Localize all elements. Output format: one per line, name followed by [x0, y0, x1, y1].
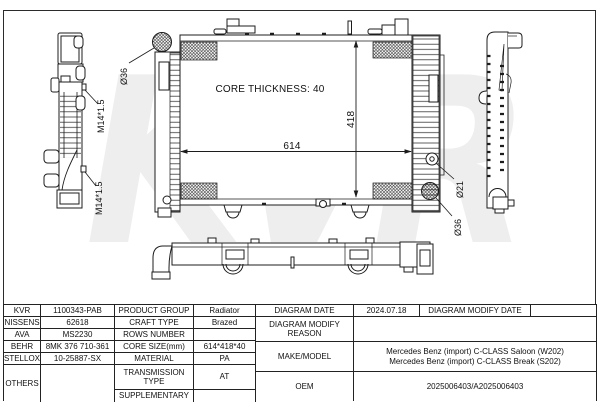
brand-name: NISSENS — [4, 317, 41, 329]
spec-label: ROWS NUMBER — [115, 329, 194, 341]
spec-label: MATERIAL — [115, 353, 194, 365]
spec-value: Brazed — [194, 317, 256, 329]
spec-value: Radiator — [194, 305, 256, 317]
diagram-modify-reason-label: DIAGRAM MODIFY REASON — [256, 317, 354, 342]
make-model-line1: Mercedes Benz (import) C-CLASS Saloon (W… — [386, 347, 564, 356]
oem-value: 2025006403/A2025006403 — [354, 372, 597, 401]
diagram-modify-date-value — [531, 305, 597, 317]
make-model-value: Mercedes Benz (import) C-CLASS Saloon (W… — [354, 342, 597, 372]
spec-table-right: DIAGRAM DATE 2024.07.18 DIAGRAM MODIFY D… — [256, 305, 597, 400]
dim-418-label: 418 — [346, 110, 357, 128]
core-thickness-note: CORE THICKNESS: 40 — [215, 84, 324, 95]
pipe-diameter-label: Ø21 — [455, 181, 465, 198]
spec-label: CORE SIZE(mm) — [115, 341, 194, 353]
brand-code: 8MK 376 710-361 — [41, 341, 115, 353]
spec-table-left: KVR 1100343-PAB PRODUCT GROUP Radiator N… — [4, 305, 256, 400]
brand-name: STELLOX — [4, 353, 41, 365]
spec-value — [194, 329, 256, 341]
brand-code: 62618 — [41, 317, 115, 329]
thread-label-top: M14*1.5 — [96, 99, 106, 133]
catalog-sheet: KVR M14*1.5 M14*1.5 — [0, 0, 600, 402]
brand-name: KVR — [4, 305, 41, 317]
brand-name: BEHR — [4, 341, 41, 353]
oem-label: OEM — [256, 372, 354, 401]
brand-name: OTHERS — [4, 365, 41, 402]
brand-code: 10-25887-SX — [41, 353, 115, 365]
diagram-date-value: 2024.07.18 — [354, 305, 420, 317]
spec-label: PRODUCT GROUP — [115, 305, 194, 317]
diagram-modify-reason-value — [354, 317, 597, 342]
spec-label: SUPPLEMENTARY — [115, 390, 194, 402]
outlet-diameter-label: Ø36 — [453, 219, 463, 236]
diagram-date-label: DIAGRAM DATE — [256, 305, 354, 317]
radiator-technical-drawing: KVR M14*1.5 M14*1.5 — [0, 0, 600, 304]
brand-name: AVA — [4, 329, 41, 341]
spec-value — [194, 390, 256, 402]
spec-value: 614*418*40 — [194, 341, 256, 353]
diagram-modify-date-label: DIAGRAM MODIFY DATE — [420, 305, 531, 317]
spec-label: CRAFT TYPE — [115, 317, 194, 329]
dim-614-label: 614 — [283, 141, 301, 152]
spec-table: KVR 1100343-PAB PRODUCT GROUP Radiator N… — [3, 304, 597, 401]
thread-label-bottom: M14*1.5 — [94, 181, 104, 215]
make-model-label: MAKE/MODEL — [256, 342, 354, 372]
spec-value: PA — [194, 353, 256, 365]
brand-code: MS2230 — [41, 329, 115, 341]
inlet-diameter-label: Ø36 — [119, 68, 129, 85]
brand-code: 1100343-PAB — [41, 305, 115, 317]
spec-value: AT — [194, 365, 256, 390]
brand-code — [41, 365, 115, 402]
spec-label: TRANSMISSION TYPE — [115, 365, 194, 390]
make-model-line2: Mercedes Benz (import) C-CLASS Break (S2… — [386, 357, 564, 366]
